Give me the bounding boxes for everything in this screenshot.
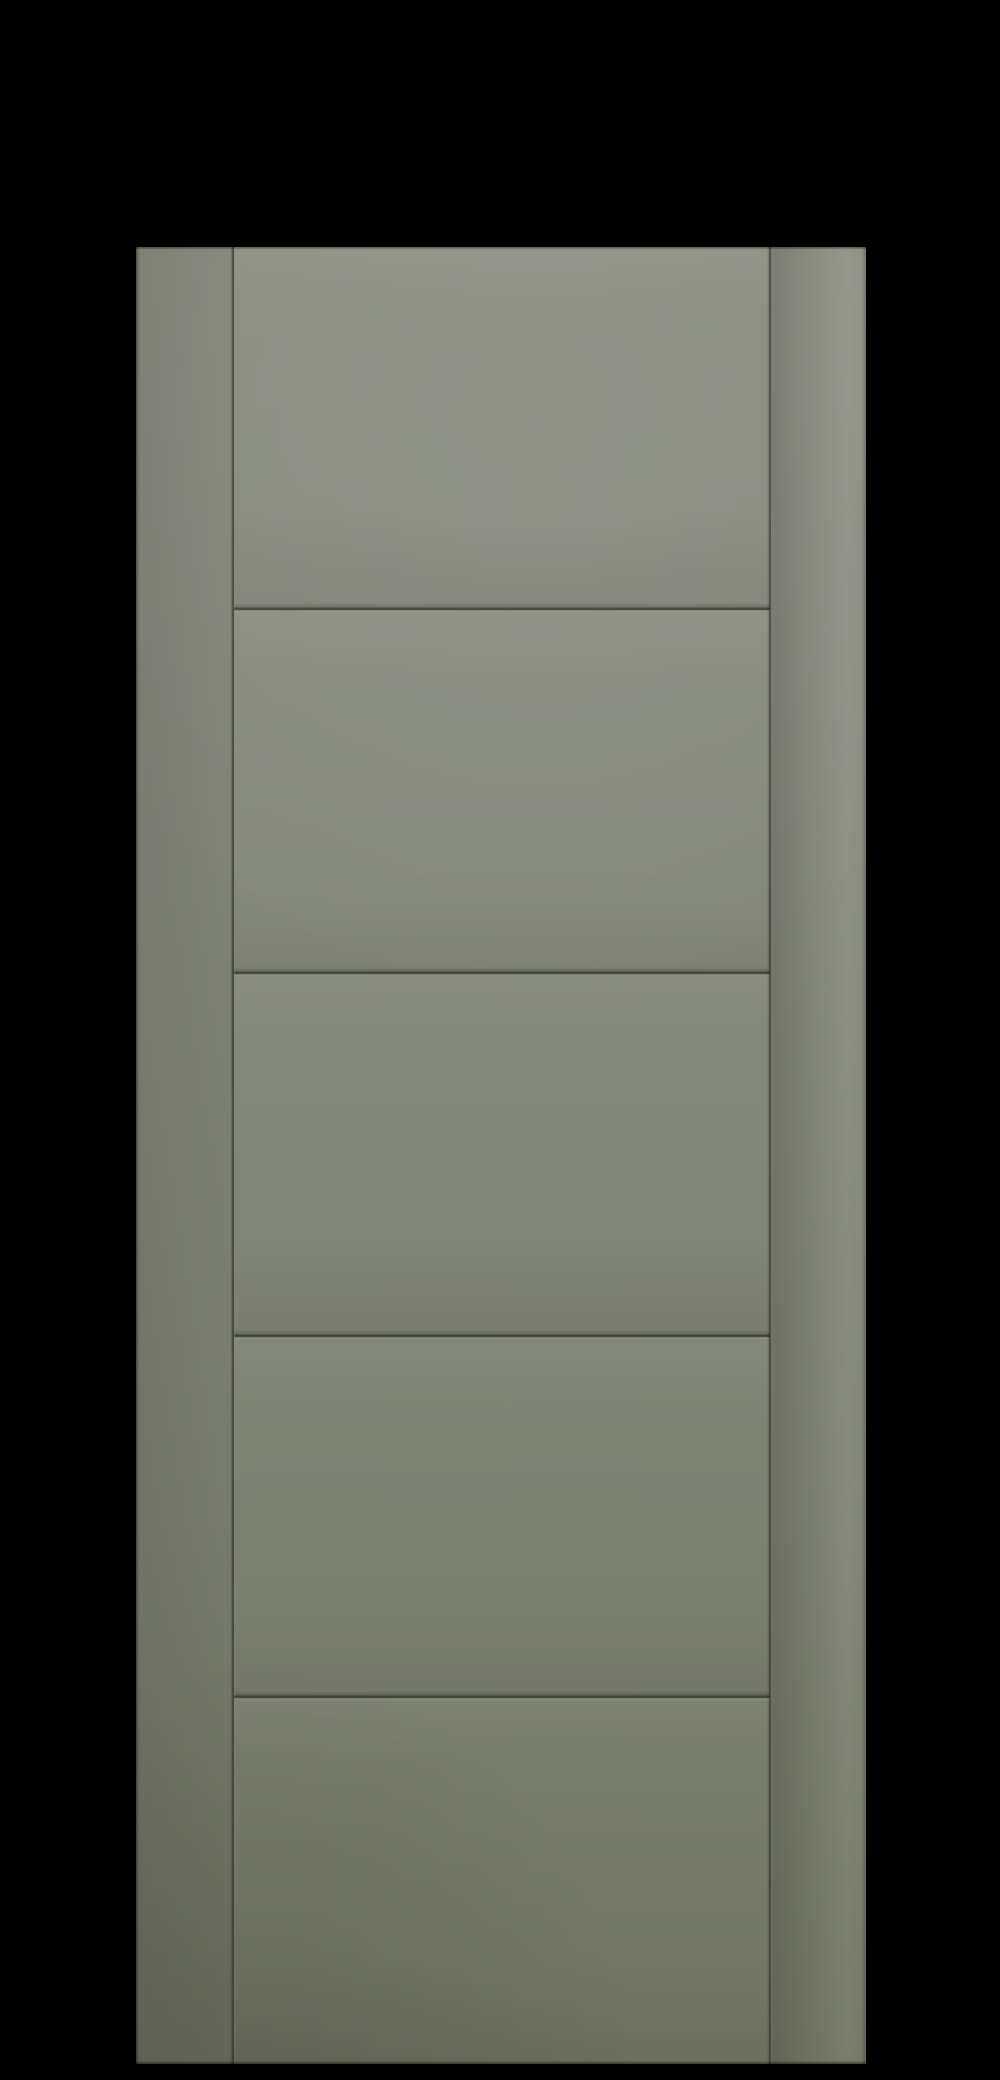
right-stile-groove bbox=[767, 247, 773, 2064]
door-left-stile bbox=[136, 247, 233, 2064]
panel-groove-4 bbox=[233, 1691, 770, 1701]
door-right-stile bbox=[770, 247, 866, 2064]
left-stile-groove bbox=[230, 247, 236, 2064]
door-panel-2 bbox=[233, 608, 770, 972]
door-panel-4 bbox=[233, 1335, 770, 1696]
door-panel-5 bbox=[233, 1696, 770, 2064]
door-panel-3 bbox=[233, 972, 770, 1335]
five-panel-door bbox=[136, 247, 866, 2064]
door-center-field bbox=[233, 247, 770, 2064]
panel-groove-1 bbox=[233, 603, 770, 613]
panel-groove-3 bbox=[233, 1330, 770, 1340]
door-panel-1 bbox=[233, 247, 770, 608]
black-background bbox=[0, 0, 1000, 2080]
panel-groove-2 bbox=[233, 967, 770, 977]
